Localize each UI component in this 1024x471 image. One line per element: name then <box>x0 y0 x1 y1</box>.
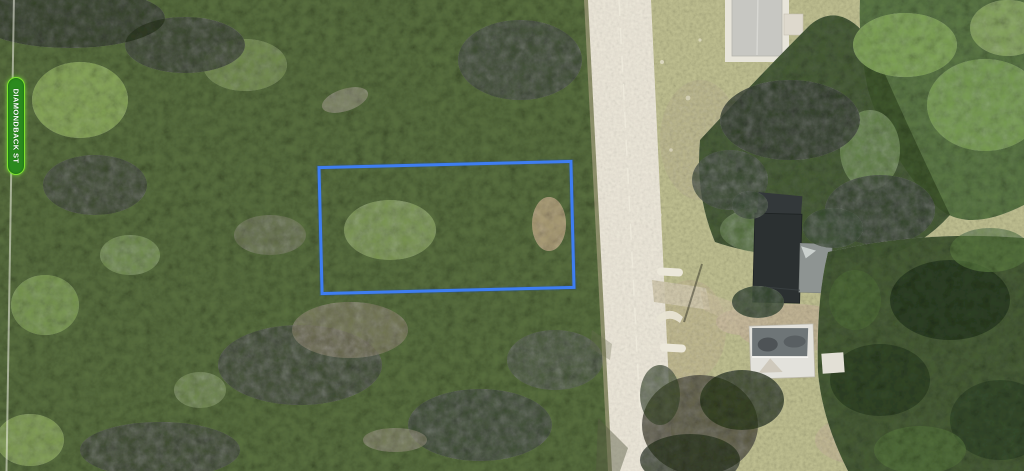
street-name-label: DIAMONDBACK ST <box>12 89 21 164</box>
tree-mass-bottom-right <box>818 228 1024 471</box>
white-shed <box>821 352 844 373</box>
parcel-outline <box>317 160 575 295</box>
map-canvas[interactable]: DIAMONDBACK ST <box>0 0 1024 471</box>
building-top-annex <box>784 14 803 35</box>
street-name-badge: DIAMONDBACK ST <box>7 77 25 175</box>
building-lower <box>749 324 815 379</box>
